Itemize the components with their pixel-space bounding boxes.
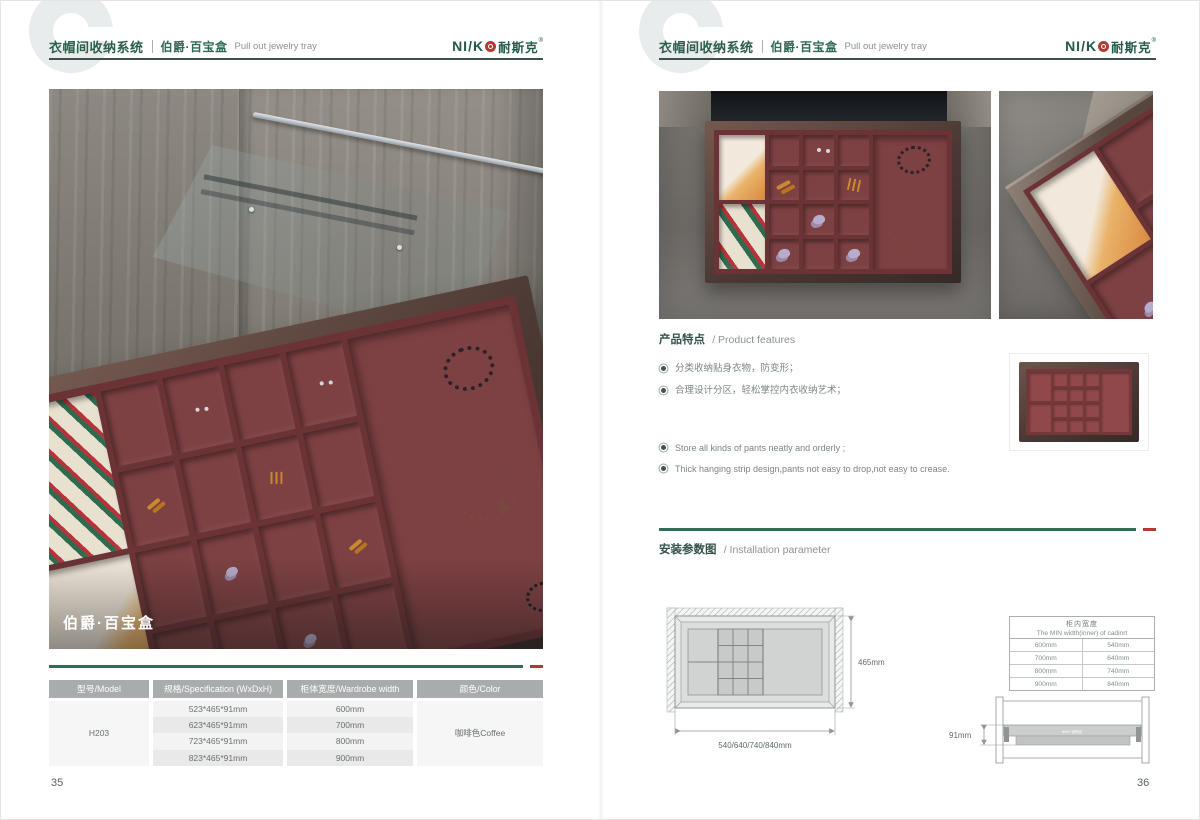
system-title: 衣帽间收纳系统 [49, 37, 144, 56]
table-row: 800mm 740mm [1010, 665, 1154, 678]
feature-item: Store all kinds of pants neatly and orde… [659, 442, 1009, 454]
tray-corner-photo [999, 91, 1153, 319]
header-title: 衣帽间收纳系统 伯爵·百宝盒 Pull out jewelry tray [659, 37, 927, 56]
scarf-cream [719, 135, 765, 200]
gold-tassel [838, 170, 869, 201]
tray-compartments [714, 130, 952, 274]
necklace-strand [888, 152, 934, 224]
glass-screw-icon [249, 207, 254, 212]
spec-cell: 723*465*91mm [153, 733, 283, 749]
width-cell: 600mm [287, 701, 413, 717]
features-heading-en: / Product features [712, 334, 795, 346]
product-features-section: 产品特点 / Product features 分类收纳贴身衣物，防变形； 合理… [659, 331, 1009, 484]
bullet-icon [661, 388, 666, 393]
header-rule [659, 58, 1156, 60]
accent-divider [659, 528, 1156, 531]
nisko-logo: NI/K 耐斯克 ® [452, 37, 543, 56]
logo-cn: 耐斯克 [498, 37, 539, 56]
width-cell: 800mm [287, 733, 413, 749]
spec-cell: 823*465*91mm [153, 750, 283, 766]
feature-item: Thick hanging strip design,pants not eas… [659, 463, 1009, 475]
tray-topview-photo [659, 91, 991, 319]
earrings [285, 340, 357, 427]
page-fold [598, 1, 604, 819]
tray-render [1019, 362, 1139, 442]
page-number: 36 [1137, 777, 1149, 789]
width-cell: 900mm [287, 750, 413, 766]
product-name-cn: 伯爵·百宝盒 [771, 38, 838, 55]
logo-latin: NI/K [452, 38, 484, 54]
system-title: 衣帽间收纳系统 [659, 37, 754, 56]
spec-cell: 523*465*91mm [153, 701, 283, 717]
col-header-spec: 规格/Specification (WxDxH) [153, 680, 283, 698]
depth-dimension-label: 465mm [858, 658, 885, 667]
jewelry-tray-corner [1005, 91, 1153, 319]
features-heading-cn: 产品特点 [659, 334, 705, 346]
installation-heading-en: / Installation parameter [724, 544, 831, 556]
catalog-spread: 衣帽间收纳系统 伯爵·百宝盒 Pull out jewelry tray NI/… [0, 0, 1200, 820]
product-name-en: Pull out jewelry tray [235, 41, 317, 52]
table-row: 900mm 840mm [1010, 678, 1154, 690]
tray-open-area [873, 135, 947, 269]
logo-cn: 耐斯克 [1111, 37, 1152, 56]
header-separator [152, 40, 153, 53]
table-row: 700mm 640mm [1010, 652, 1154, 665]
butterfly-clip [769, 239, 800, 270]
page-right: 衣帽间收纳系统 伯爵·百宝盒 Pull out jewelry tray NI/… [601, 1, 1200, 820]
page-left: 衣帽间收纳系统 伯爵·百宝盒 Pull out jewelry tray NI/… [1, 1, 601, 820]
nisko-logo: NI/K 耐斯克 ® [1065, 37, 1156, 56]
features-list-cn: 分类收纳贴身衣物，防变形； 合理设计分区，轻松掌控内衣收纳艺术； [659, 363, 1009, 398]
logo-latin: NI/K [1065, 38, 1097, 54]
butterfly-clip [838, 239, 869, 270]
header-rule [49, 58, 543, 60]
height-dimension-label: 91mm [949, 731, 972, 740]
earrings [162, 367, 234, 454]
col-header-model: 型号/Model [49, 680, 149, 698]
spec-cell: 623*465*91mm [153, 717, 283, 733]
color-cell: 咖啡色Coffee [417, 701, 543, 766]
tray-brand-emboss: NI/KO 耐斯克 [1062, 729, 1083, 734]
gold-tassel [241, 434, 313, 521]
header-title: 衣帽间收纳系统 伯爵·百宝盒 Pull out jewelry tray [49, 37, 317, 56]
topview-diagram: 465mm 540/640/740/840mm [661, 605, 901, 757]
amber-brooch [117, 460, 189, 547]
bullet-icon [661, 466, 666, 471]
model-cell: H203 [49, 701, 149, 766]
col-header-color: 颜色/Color [417, 680, 543, 698]
scarf-striped [719, 204, 765, 269]
photo-shade [49, 557, 543, 649]
glass-screw-icon [397, 245, 402, 250]
table-row: 600mm 540mm [1010, 639, 1154, 652]
col-header-width: 柜体宽度/Wardrobe width [287, 680, 413, 698]
features-heading: 产品特点 / Product features [659, 331, 1009, 347]
feature-item: 分类收纳贴身衣物，防变形； [659, 363, 1009, 376]
min-width-table: 柜内宽度 The MIN width(inner) of cadinrt 600… [1009, 616, 1155, 691]
spec-table: 型号/Model 规格/Specification (WxDxH) 柜体宽度/W… [49, 680, 543, 766]
registered-mark: ® [1152, 38, 1156, 44]
jewelry-tray [705, 121, 961, 283]
sideview-diagram: NI/KO 耐斯克 91mm [946, 695, 1156, 767]
installation-heading-cn: 安装参数图 [659, 544, 717, 556]
page-header: 衣帽间收纳系统 伯爵·百宝盒 Pull out jewelry tray NI/… [659, 35, 1156, 57]
registered-mark: ® [539, 38, 543, 44]
hero-photo: NI/KO 耐斯克 伯爵·百宝盒 [49, 89, 543, 649]
page-header: 衣帽间收纳系统 伯爵·百宝盒 Pull out jewelry tray NI/… [49, 35, 543, 57]
butterfly-clip [803, 204, 834, 235]
spec-table-header: 型号/Model 规格/Specification (WxDxH) 柜体宽度/W… [49, 680, 543, 698]
installation-heading: 安装参数图 / Installation parameter [659, 541, 831, 557]
page-number: 35 [51, 777, 63, 789]
earrings [803, 135, 834, 166]
product-render-thumbnail [1009, 353, 1149, 451]
width-cell: 700mm [287, 717, 413, 733]
spec-table-body: H203 523*465*91mm 600mm 咖啡色Coffee 623*46… [49, 701, 543, 766]
logo-o-mark-icon [485, 41, 496, 52]
product-name-cn: 伯爵·百宝盒 [161, 38, 228, 55]
amber-brooch [769, 170, 800, 201]
width-dimension-label: 540/640/740/840mm [718, 741, 792, 750]
product-name-en: Pull out jewelry tray [845, 41, 927, 52]
logo-o-mark-icon [1098, 41, 1109, 52]
features-list-en: Store all kinds of pants neatly and orde… [659, 442, 1009, 475]
min-width-table-title: 柜内宽度 The MIN width(inner) of cadinrt [1010, 617, 1154, 639]
bullet-icon [661, 445, 666, 450]
photo-caption: 伯爵·百宝盒 [63, 612, 155, 633]
bullet-icon [661, 366, 666, 371]
header-separator [762, 40, 763, 53]
accent-divider [49, 665, 543, 668]
tray-grid [769, 135, 869, 269]
feature-item: 合理设计分区，轻松掌控内衣收纳艺术； [659, 385, 1009, 398]
tray-scarf-column [719, 135, 765, 269]
